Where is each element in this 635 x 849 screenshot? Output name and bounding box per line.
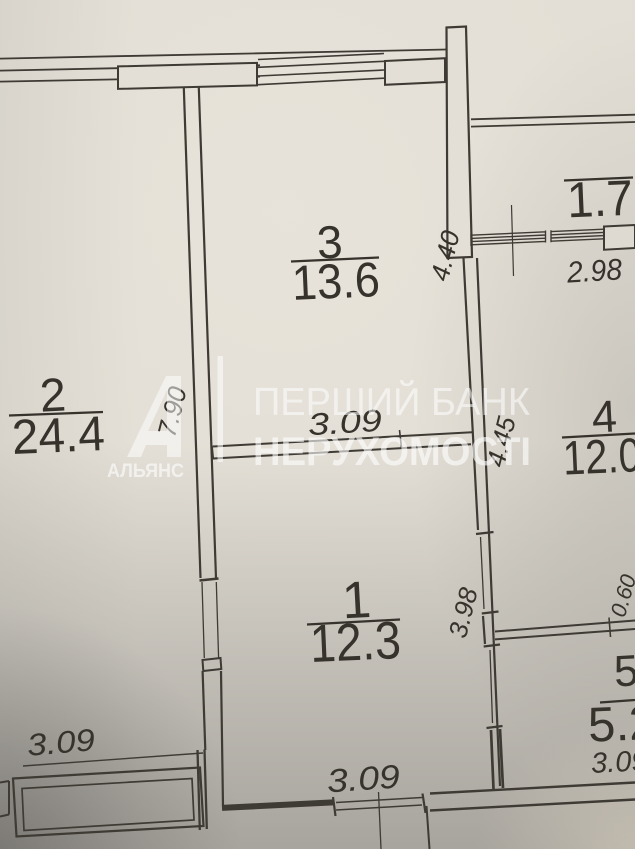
svg-text:НЕРУХОМОСТІ: НЕРУХОМОСТІ <box>253 430 531 474</box>
svg-text:ПЕРШИЙ БАНК: ПЕРШИЙ БАНК <box>253 379 530 424</box>
svg-text:АЛЬЯНС: АЛЬЯНС <box>107 461 184 482</box>
